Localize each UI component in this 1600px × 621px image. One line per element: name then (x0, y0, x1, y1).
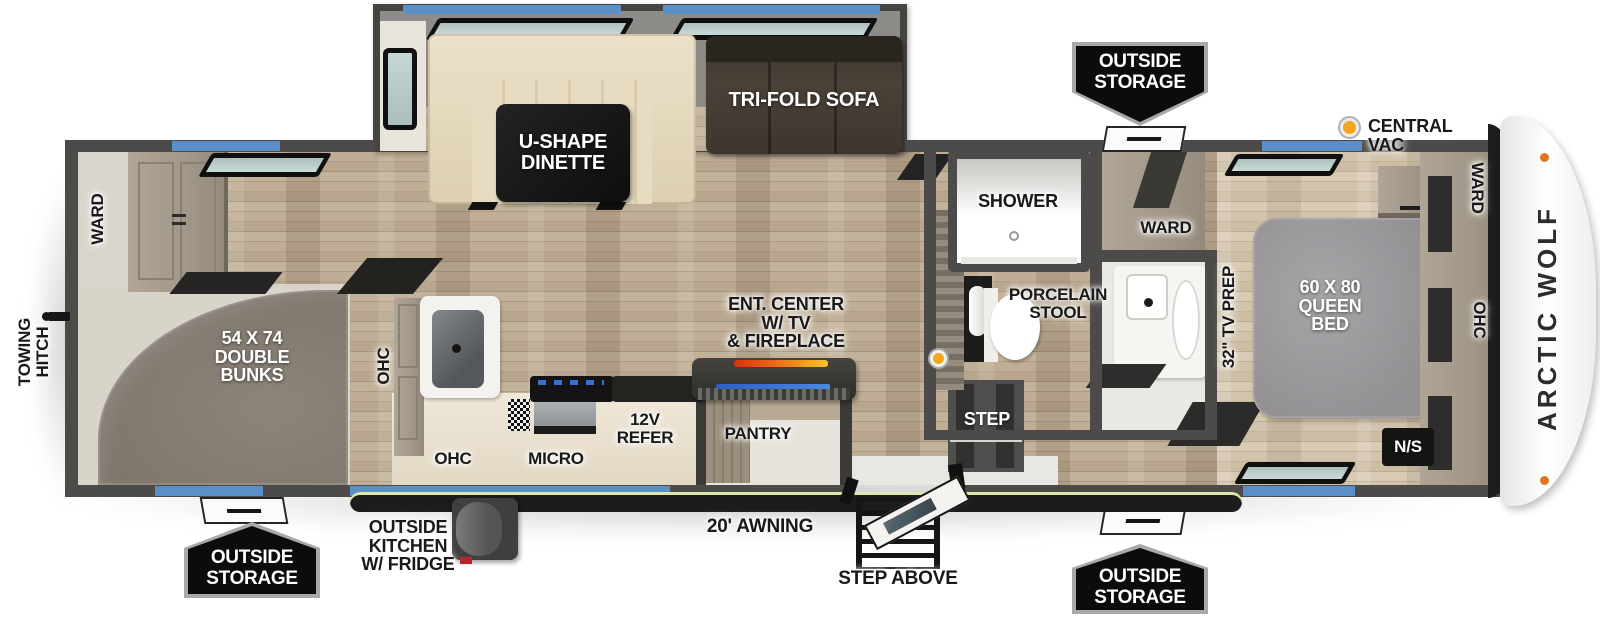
tv-prep-wall (1205, 250, 1217, 440)
outside-storage-badge-front: OUTSIDE STORAGE (1072, 544, 1208, 614)
stool-label: PORCELAIN STOOL (1008, 286, 1108, 321)
window-strip-bedroom-bottom (1243, 486, 1355, 496)
outside-kitchen-label: OUTSIDE KITCHEN W/ FRIDGE (348, 518, 468, 574)
central-vac-label: CENTRAL VAC (1368, 117, 1488, 154)
bedroom-window-bottom (1234, 462, 1357, 484)
rear-roof-vent (198, 153, 332, 177)
bunks-label: 54 X 74 DOUBLE BUNKS (192, 329, 312, 385)
brand-label: ARCTIC WOLF (1534, 188, 1564, 448)
window-strip-rear-top (172, 141, 280, 151)
slide-end-window (383, 48, 417, 130)
window-strip-slide-2 (663, 5, 880, 14)
vanity-basin-oval (1172, 280, 1200, 360)
bath-wall-bottom (924, 430, 1217, 440)
bunk-ladder-shelf (169, 272, 282, 294)
shower-stall (948, 150, 1090, 272)
bath-wall-left (924, 152, 936, 440)
outside-storage-front-label: OUTSIDE STORAGE (1076, 548, 1204, 610)
kitchen-ohc-wall-label: OHC (375, 341, 393, 391)
night-stand-label: N/S (1394, 438, 1422, 456)
dinette-label: U-SHAPE DINETTE (519, 132, 608, 174)
bath-wall-mid-horizontal (1090, 250, 1217, 262)
kitchen-ohc-counter-label: OHC (423, 450, 483, 468)
window-strip-bunk-bottom (155, 486, 263, 496)
storage-flap-rear (200, 497, 289, 524)
refer-top (612, 376, 704, 402)
awning-label: 20' AWNING (700, 517, 820, 537)
step-label: STEP (952, 410, 1022, 429)
cooktop (530, 376, 614, 402)
rear-ward-label: WARD (89, 184, 109, 254)
fireplace-glow (734, 360, 828, 367)
dinette-table: U-SHAPE DINETTE (496, 104, 630, 202)
sofa-label: TRI-FOLD SOFA (729, 90, 880, 111)
night-stand: N/S (1382, 428, 1434, 466)
towing-hitch-label: TOWING HITCH (16, 297, 60, 407)
tv-prep-label: 32" TV PREP (1220, 257, 1238, 377)
tv-strip (716, 384, 830, 389)
vanity-counter (1114, 266, 1205, 378)
shower-drain-icon (1009, 231, 1019, 241)
window-strip-slide-1 (403, 5, 621, 14)
bath-ward-label: WARD (1131, 219, 1201, 237)
central-vac-icon (1340, 118, 1359, 137)
microwave (534, 400, 596, 434)
outside-storage-badge-top: OUTSIDE STORAGE (1072, 42, 1208, 126)
ent-center-unit (692, 358, 856, 400)
tri-fold-sofa: TRI-FOLD SOFA (706, 36, 902, 154)
bed-label: 60 X 80 QUEEN BED (1270, 278, 1390, 334)
outside-storage-top-label: OUTSIDE STORAGE (1076, 46, 1204, 122)
floorplan-canvas: N/S U-SHAPE DINETTE TRI-FOLD SOFA ARCTIC… (0, 0, 1600, 621)
central-vac-location-dot (930, 350, 947, 367)
kitchen-sink-island (420, 296, 500, 398)
pantry-label: PANTRY (718, 425, 798, 443)
faucet-icon (452, 344, 461, 353)
front-ohc-label: OHC (1470, 285, 1488, 355)
dish-drainer (508, 399, 530, 431)
storage-flap-top (1102, 126, 1187, 152)
marker-light-top (1540, 153, 1549, 162)
window-strip-bedroom-top (1262, 141, 1362, 151)
vanity-sink (1126, 274, 1168, 320)
ent-center-label: ENT. CENTER W/ TV & FIREPLACE (716, 295, 856, 351)
bedroom-window-top (1224, 154, 1345, 176)
refer-label: 12V REFER (610, 411, 680, 446)
front-ward-label: WARD (1468, 153, 1486, 223)
dinette-foot-1 (468, 202, 499, 210)
marker-light-bottom (1540, 476, 1549, 485)
vanity-faucet-icon (1144, 298, 1153, 307)
shower-label: SHOWER (973, 192, 1063, 211)
micro-label: MICRO (521, 450, 591, 468)
dinette-foot-2 (596, 202, 627, 210)
step-above-label: STEP ABOVE (838, 569, 958, 589)
